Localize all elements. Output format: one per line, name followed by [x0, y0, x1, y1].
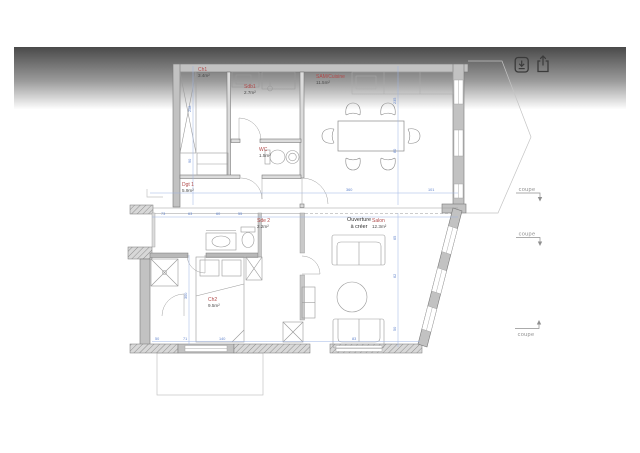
room-area-label: 12.3m²	[372, 224, 387, 229]
sofa-bottom	[333, 319, 384, 348]
room-area-label: 11.5m²	[316, 80, 330, 85]
coupe-arrow-1	[516, 193, 540, 199]
room-area-label: 2.7m²	[244, 90, 256, 95]
dimension-label: 300	[184, 293, 188, 299]
coupe-arrowhead-3	[537, 320, 541, 325]
side-table	[283, 322, 303, 342]
room-area-label: 9.5m²	[208, 303, 220, 308]
room-area-label: 3.4m²	[198, 73, 210, 78]
dimension-label: 140	[219, 337, 225, 341]
sofa-top	[332, 235, 385, 265]
coupe-arrow-3	[515, 323, 539, 329]
coupe-label-1: coupe	[519, 187, 536, 193]
annotation-line2: à créer	[351, 224, 368, 230]
section-markers: coupe coupe coupe	[515, 187, 542, 338]
vanity-sde2	[206, 231, 236, 251]
toilet-sde2	[241, 227, 255, 248]
dimension-label: 235	[393, 98, 397, 104]
share-icon	[535, 54, 551, 74]
dimension-label: 80	[393, 149, 397, 153]
coffee-table	[337, 282, 367, 312]
dimension-label: 73	[161, 212, 165, 216]
coupe-arrowhead-2	[538, 242, 542, 247]
download-icon	[514, 56, 530, 74]
dimension-label: 62	[393, 274, 397, 278]
dimension-label: 258	[188, 106, 192, 112]
bed	[196, 257, 244, 342]
dimension-label: 360	[346, 188, 352, 192]
room-area-label: 5.9m²	[182, 188, 194, 193]
annotation-ouverture: Ouverture à créer	[347, 217, 371, 230]
shower	[151, 259, 178, 286]
coupe-arrow-2	[516, 238, 540, 244]
coupe-label-2: coupe	[519, 232, 536, 238]
coupe-label-3: coupe	[518, 332, 535, 338]
dimension-label: 101	[428, 188, 434, 192]
plan-viewer: 2589023580360101736360553006562505071140…	[0, 0, 640, 453]
annotation-line1: Ouverture	[347, 217, 371, 223]
dimension-label: 50	[155, 337, 159, 341]
dimension-label: 71	[183, 337, 187, 341]
wardrobe	[246, 257, 262, 280]
room-area-label: 1.5m²	[259, 153, 271, 158]
dimension-label: 50	[393, 327, 397, 331]
dimension-label: 55	[238, 212, 242, 216]
coupe-arrowhead-1	[538, 197, 542, 202]
room-area-label: 2.2m²	[257, 224, 269, 229]
dimension-label: 65	[393, 236, 397, 240]
download-button[interactable]	[514, 56, 530, 74]
dining-set	[322, 103, 420, 170]
dimension-label: 60	[216, 212, 220, 216]
dimension-label: 90	[188, 159, 192, 163]
dimension-label: 83	[352, 337, 356, 341]
dimension-label: 63	[188, 212, 192, 216]
share-button[interactable]	[535, 54, 551, 74]
